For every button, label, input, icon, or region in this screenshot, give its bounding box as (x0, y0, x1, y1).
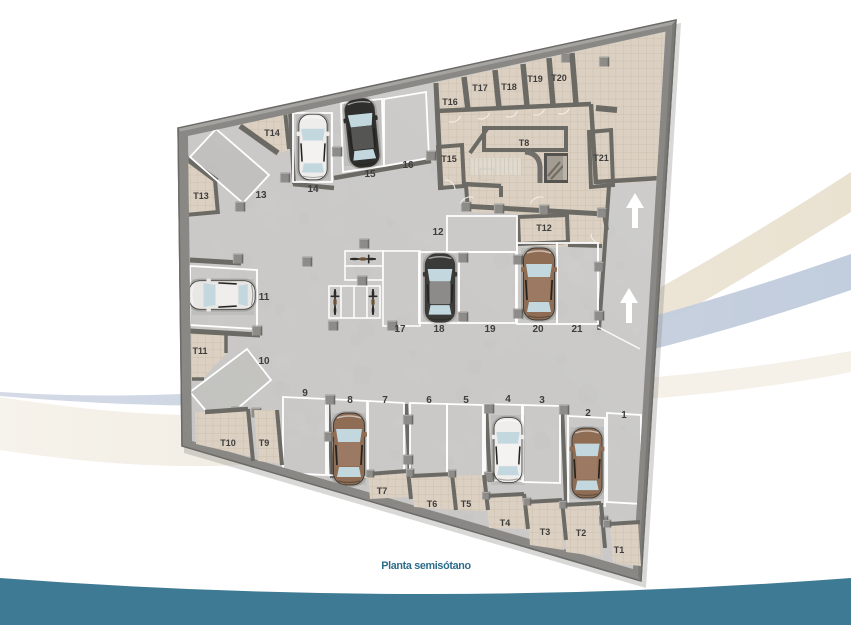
svg-text:T15: T15 (441, 154, 457, 164)
svg-text:T2: T2 (576, 528, 587, 538)
svg-text:18: 18 (433, 324, 445, 335)
svg-text:12: 12 (432, 227, 444, 238)
svg-text:10: 10 (258, 356, 270, 367)
svg-text:T10: T10 (220, 438, 236, 448)
svg-text:T12: T12 (536, 223, 552, 233)
svg-text:T14: T14 (264, 128, 280, 138)
svg-text:14: 14 (307, 184, 319, 195)
svg-text:1: 1 (621, 410, 627, 421)
svg-text:11: 11 (259, 292, 270, 303)
svg-text:T18: T18 (501, 82, 517, 92)
svg-text:T9: T9 (259, 438, 270, 448)
svg-text:5: 5 (463, 395, 469, 406)
svg-text:Planta semisótano: Planta semisótano (381, 560, 471, 572)
svg-text:3: 3 (539, 395, 545, 406)
svg-text:9: 9 (302, 388, 308, 399)
svg-text:16: 16 (402, 160, 414, 171)
svg-text:19: 19 (484, 324, 496, 335)
svg-text:13: 13 (255, 190, 267, 201)
svg-text:20: 20 (532, 324, 544, 335)
svg-text:2: 2 (585, 408, 591, 419)
svg-text:T20: T20 (551, 73, 567, 83)
svg-text:17: 17 (394, 324, 406, 335)
svg-text:T16: T16 (442, 97, 458, 107)
svg-text:21: 21 (571, 324, 583, 335)
svg-text:T17: T17 (472, 83, 488, 93)
svg-text:T4: T4 (500, 518, 511, 528)
svg-text:T3: T3 (540, 527, 551, 537)
svg-text:7: 7 (382, 395, 388, 406)
svg-text:T11: T11 (192, 346, 207, 356)
svg-text:T7: T7 (377, 486, 388, 496)
svg-text:4: 4 (505, 394, 511, 405)
svg-text:T8: T8 (519, 138, 530, 148)
svg-text:T6: T6 (427, 499, 438, 509)
svg-text:T13: T13 (193, 191, 209, 201)
svg-text:T5: T5 (461, 499, 472, 509)
svg-text:T19: T19 (527, 74, 543, 84)
svg-text:T21: T21 (593, 153, 609, 163)
svg-text:6: 6 (426, 395, 432, 406)
svg-text:15: 15 (364, 169, 376, 180)
svg-text:8: 8 (347, 395, 353, 406)
svg-text:T1: T1 (614, 545, 625, 555)
